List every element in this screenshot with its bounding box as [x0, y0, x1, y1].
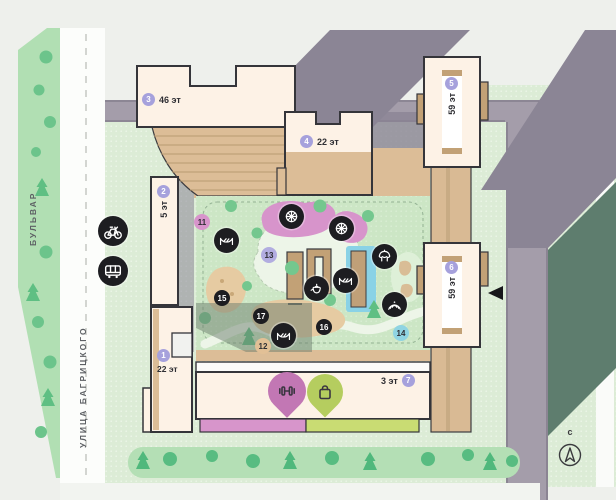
bus-icon — [102, 260, 124, 282]
gazebo-badge[interactable] — [372, 244, 397, 269]
amphitheatre-badge[interactable] — [382, 292, 407, 317]
bicycle-route-badge[interactable] — [98, 216, 128, 246]
building-5-marker: 5 — [445, 77, 458, 90]
building-3-floors: 46 эт — [159, 95, 181, 105]
building-5-floors: 59 эт — [447, 93, 457, 115]
building-1-label[interactable]: 1 22 эт — [157, 349, 178, 374]
poi-marker-14[interactable]: 14 — [393, 325, 409, 341]
compass-north-label: с — [560, 427, 580, 437]
compass-icon — [555, 440, 585, 470]
entrance-arrow — [488, 286, 503, 300]
site-map: БУЛЬВАР УЛИЦА БАГРИЦКОГО 3 46 эт 2 5 эт … — [0, 0, 616, 500]
building-2-floors: 5 эт — [159, 201, 169, 218]
carousel-wheel-icon — [332, 219, 351, 238]
poi-marker-15[interactable]: 15 — [214, 290, 230, 306]
hammock-badge-3[interactable] — [271, 323, 296, 348]
building-4-label[interactable]: 4 22 эт — [300, 135, 339, 148]
building-3-marker: 3 — [142, 93, 155, 106]
hammock-badge-2[interactable] — [333, 268, 358, 293]
building-4-marker: 4 — [300, 135, 313, 148]
building-6-marker: 6 — [445, 261, 458, 274]
bicycle-icon — [102, 220, 124, 242]
bus-stop-badge[interactable] — [98, 256, 128, 286]
street-label-bagritskogo: УЛИЦА БАГРИЦКОГО — [78, 338, 88, 448]
building-1-marker: 1 — [157, 349, 170, 362]
building-6-label[interactable]: 6 59 эт — [445, 261, 458, 299]
hammock-icon — [336, 271, 355, 290]
carousel-badge-1[interactable] — [279, 204, 304, 229]
building-7-floors: 3 эт — [381, 376, 398, 386]
carousel-badge-2[interactable] — [329, 216, 354, 241]
building-2-label[interactable]: 2 5 эт — [157, 185, 170, 218]
street-label-boulevard: БУЛЬВАР — [28, 178, 38, 246]
poi-marker-13[interactable]: 13 — [261, 247, 277, 263]
hammock-icon — [274, 326, 293, 345]
poi-marker-16[interactable]: 16 — [316, 319, 332, 335]
carousel-wheel-icon — [282, 207, 301, 226]
building-7-label[interactable]: 3 эт 7 — [381, 374, 415, 387]
site-plan-terrain — [0, 0, 616, 500]
amphitheatre-icon — [385, 295, 404, 314]
building-7-marker: 7 — [402, 374, 415, 387]
poi-marker-17[interactable]: 17 — [253, 308, 269, 324]
kettle-icon — [307, 279, 326, 298]
tea-pavilion-badge[interactable] — [304, 276, 329, 301]
building-5-label[interactable]: 5 59 эт — [445, 77, 458, 115]
building-4-floors: 22 эт — [317, 137, 339, 147]
poi-marker-12[interactable]: 12 — [255, 338, 271, 354]
dumbbell-icon — [275, 379, 299, 403]
building-1-floors: 22 эт — [157, 364, 178, 374]
gazebo-canopy-icon — [375, 247, 394, 266]
building-3-label[interactable]: 3 46 эт — [142, 93, 181, 106]
hammock-badge-1[interactable] — [214, 228, 239, 253]
poi-marker-11[interactable]: 11 — [194, 214, 210, 230]
hammock-icon — [217, 231, 236, 250]
building-6-floors: 59 эт — [447, 277, 457, 299]
building-2-marker: 2 — [157, 185, 170, 198]
shopping-bag-icon — [313, 380, 337, 404]
